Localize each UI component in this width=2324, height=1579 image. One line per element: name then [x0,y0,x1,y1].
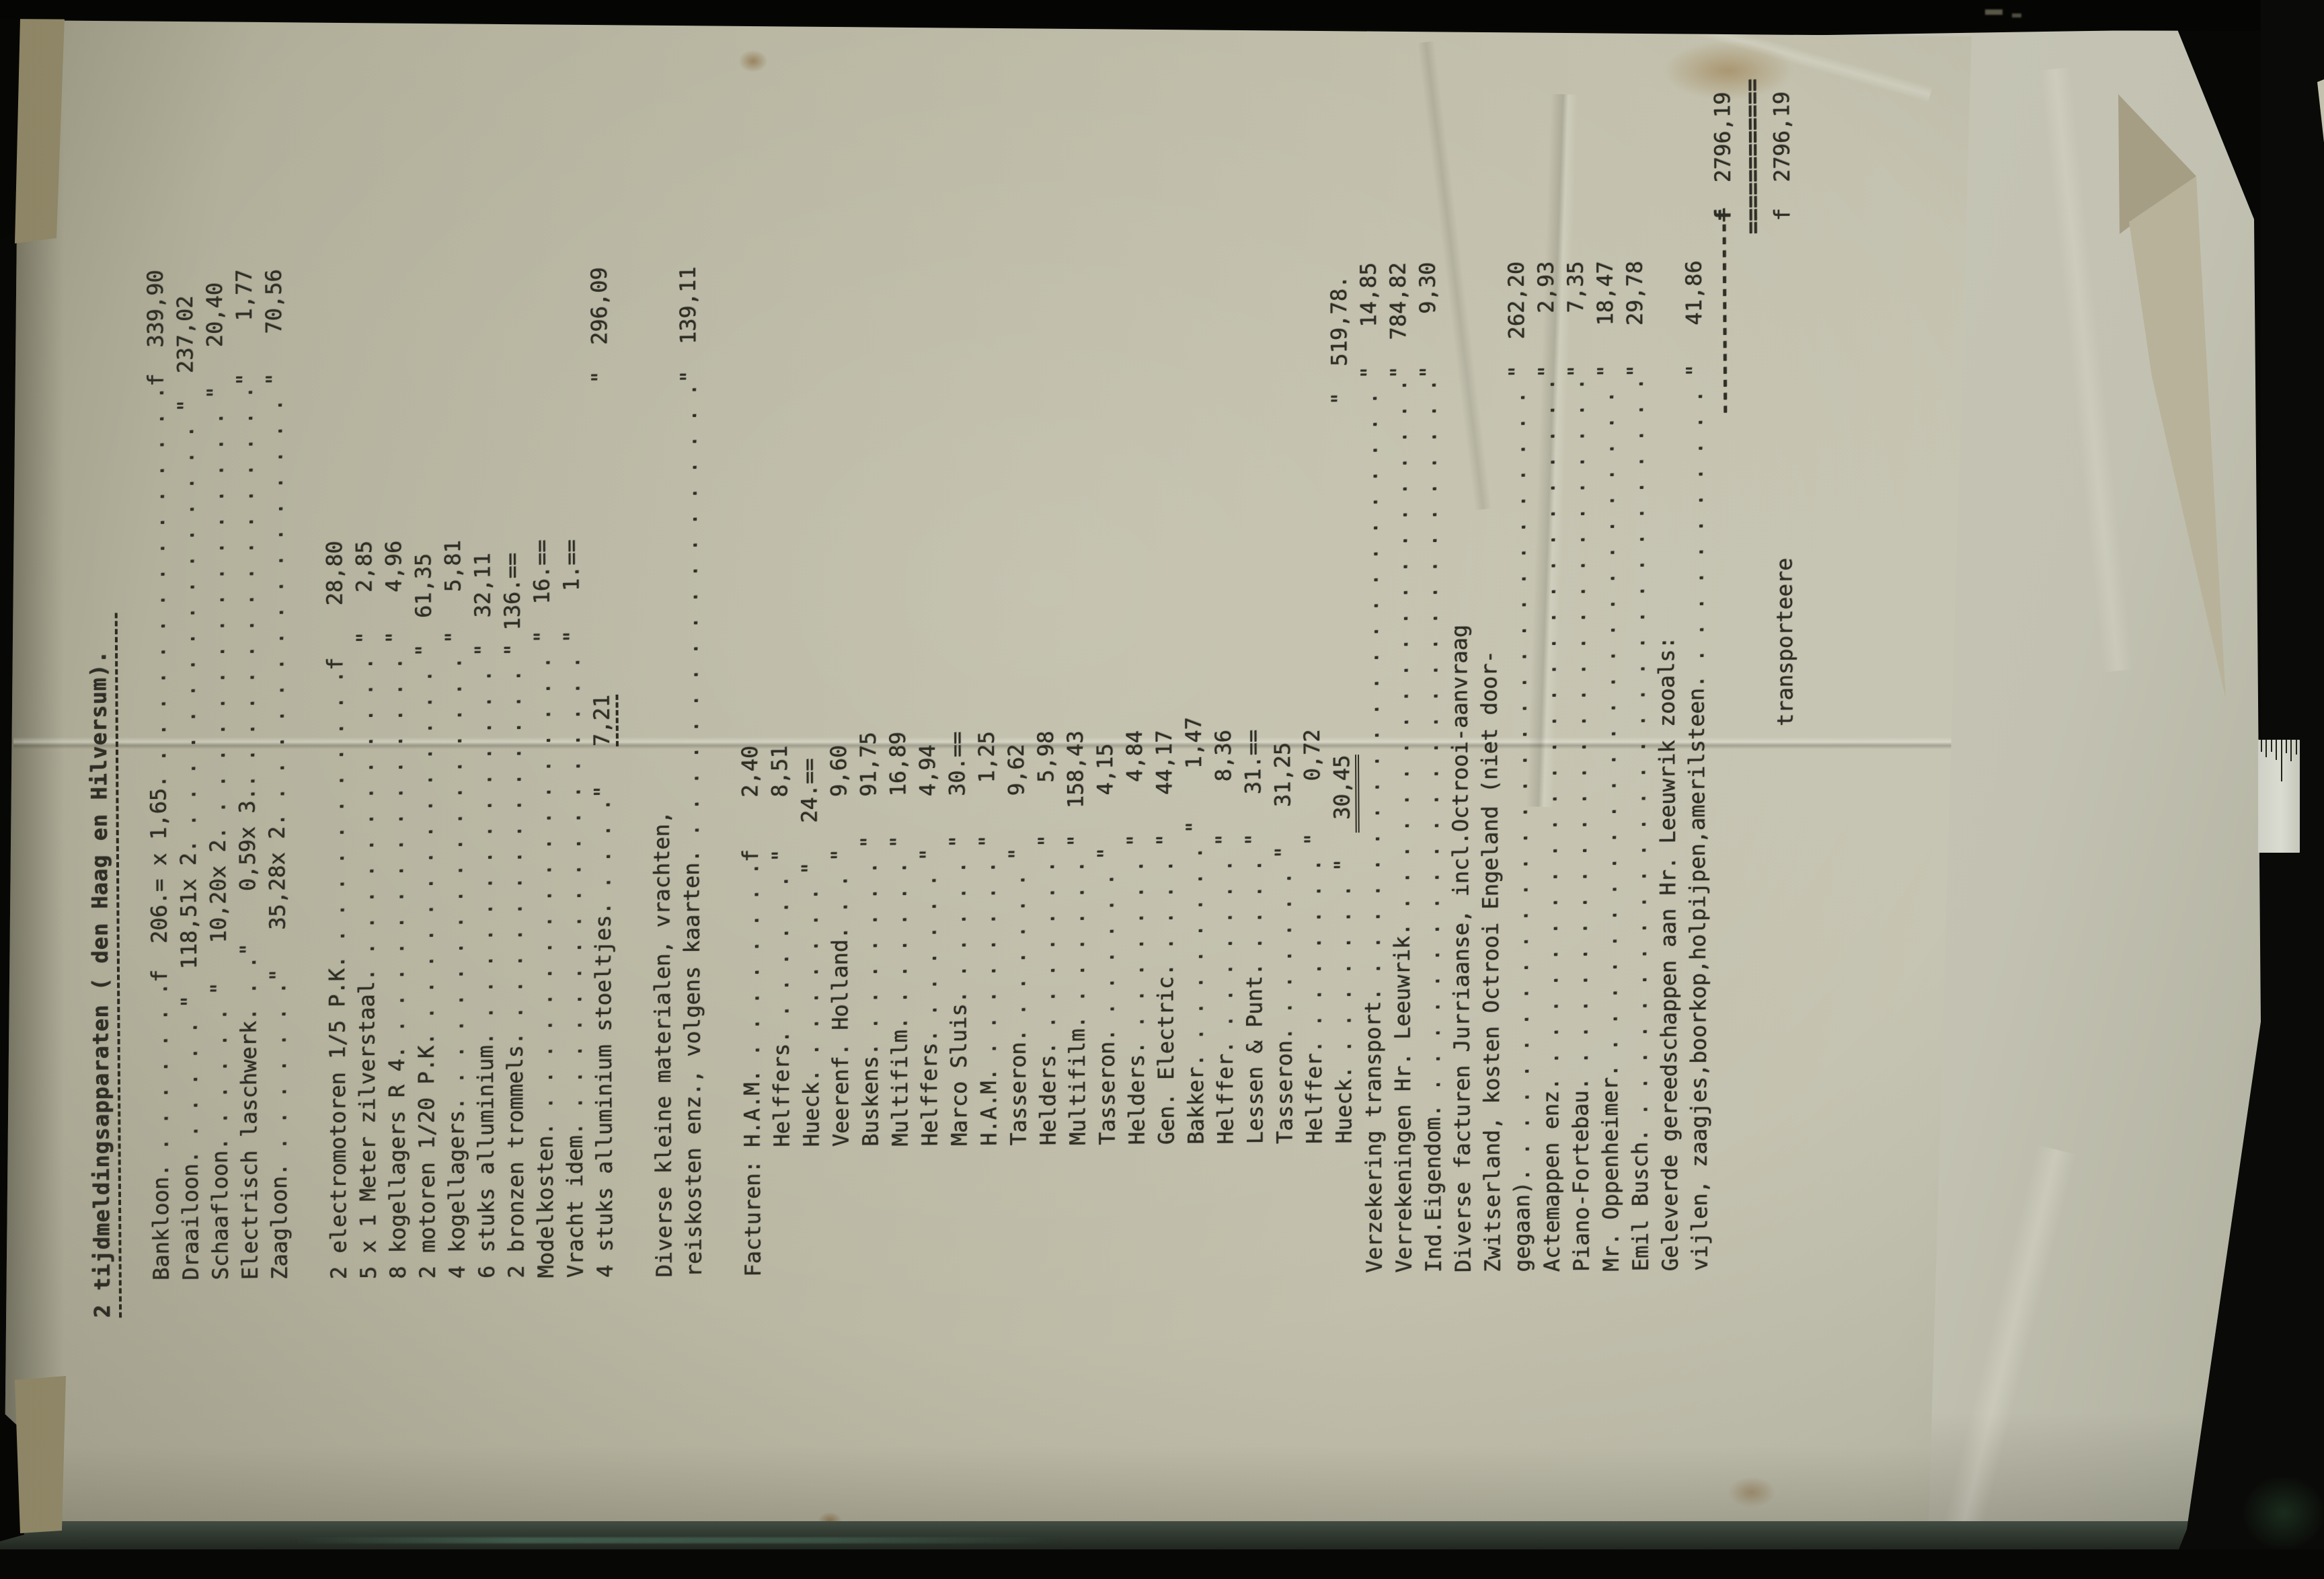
ruler [2258,740,2300,853]
doc-line-text [1711,416,1742,1271]
ruler-tick [2261,740,2262,752]
doc-line-emphasis: --------------- [1710,221,1737,416]
typed-lines: 2 tijdmeldingsapparaten ( den Haag en Hi… [79,9,1805,1527]
table-glint [289,1537,1062,1543]
ruler-tick [2265,740,2267,757]
doc-line-text: 2796,19 [1709,92,1736,209]
doc-line-text: " 296,09 [586,267,615,695]
typed-page: 2 tijdmeldingsapparaten ( den Haag en Hi… [44,9,1977,1527]
table-surface [0,1521,2324,1549]
doc-line-text: 4 stuks alluminium stoeltjes. . . . ." [589,746,618,1278]
doc-line-emphasis: 7,21 [588,695,618,746]
doc-line-emphasis: 30,45 [1329,755,1360,833]
doc-line-text [1740,234,1771,1270]
edge-mark [2012,13,2021,17]
doc-line-text: Hueck. . . . . . . . " [1329,833,1358,1273]
doc-line-emphasis: ============ [1739,79,1765,234]
doc-line-text: " 519,78. [1326,276,1354,755]
doc-line-emphasis: 2 tijdmeldingsapparaten ( den Haag en Hi… [85,613,122,1317]
ruler-tick [2286,740,2287,753]
doc-line-emphasis: f [1710,208,1736,221]
ruler-tick [2290,740,2292,761]
background-object [2243,1477,2324,1549]
edge-mark [1985,9,2003,15]
ruler-tick [2276,740,2277,760]
ruler-tick [2271,740,2272,752]
ruler-tick [2281,740,2282,781]
ruler-tick [2296,740,2297,755]
